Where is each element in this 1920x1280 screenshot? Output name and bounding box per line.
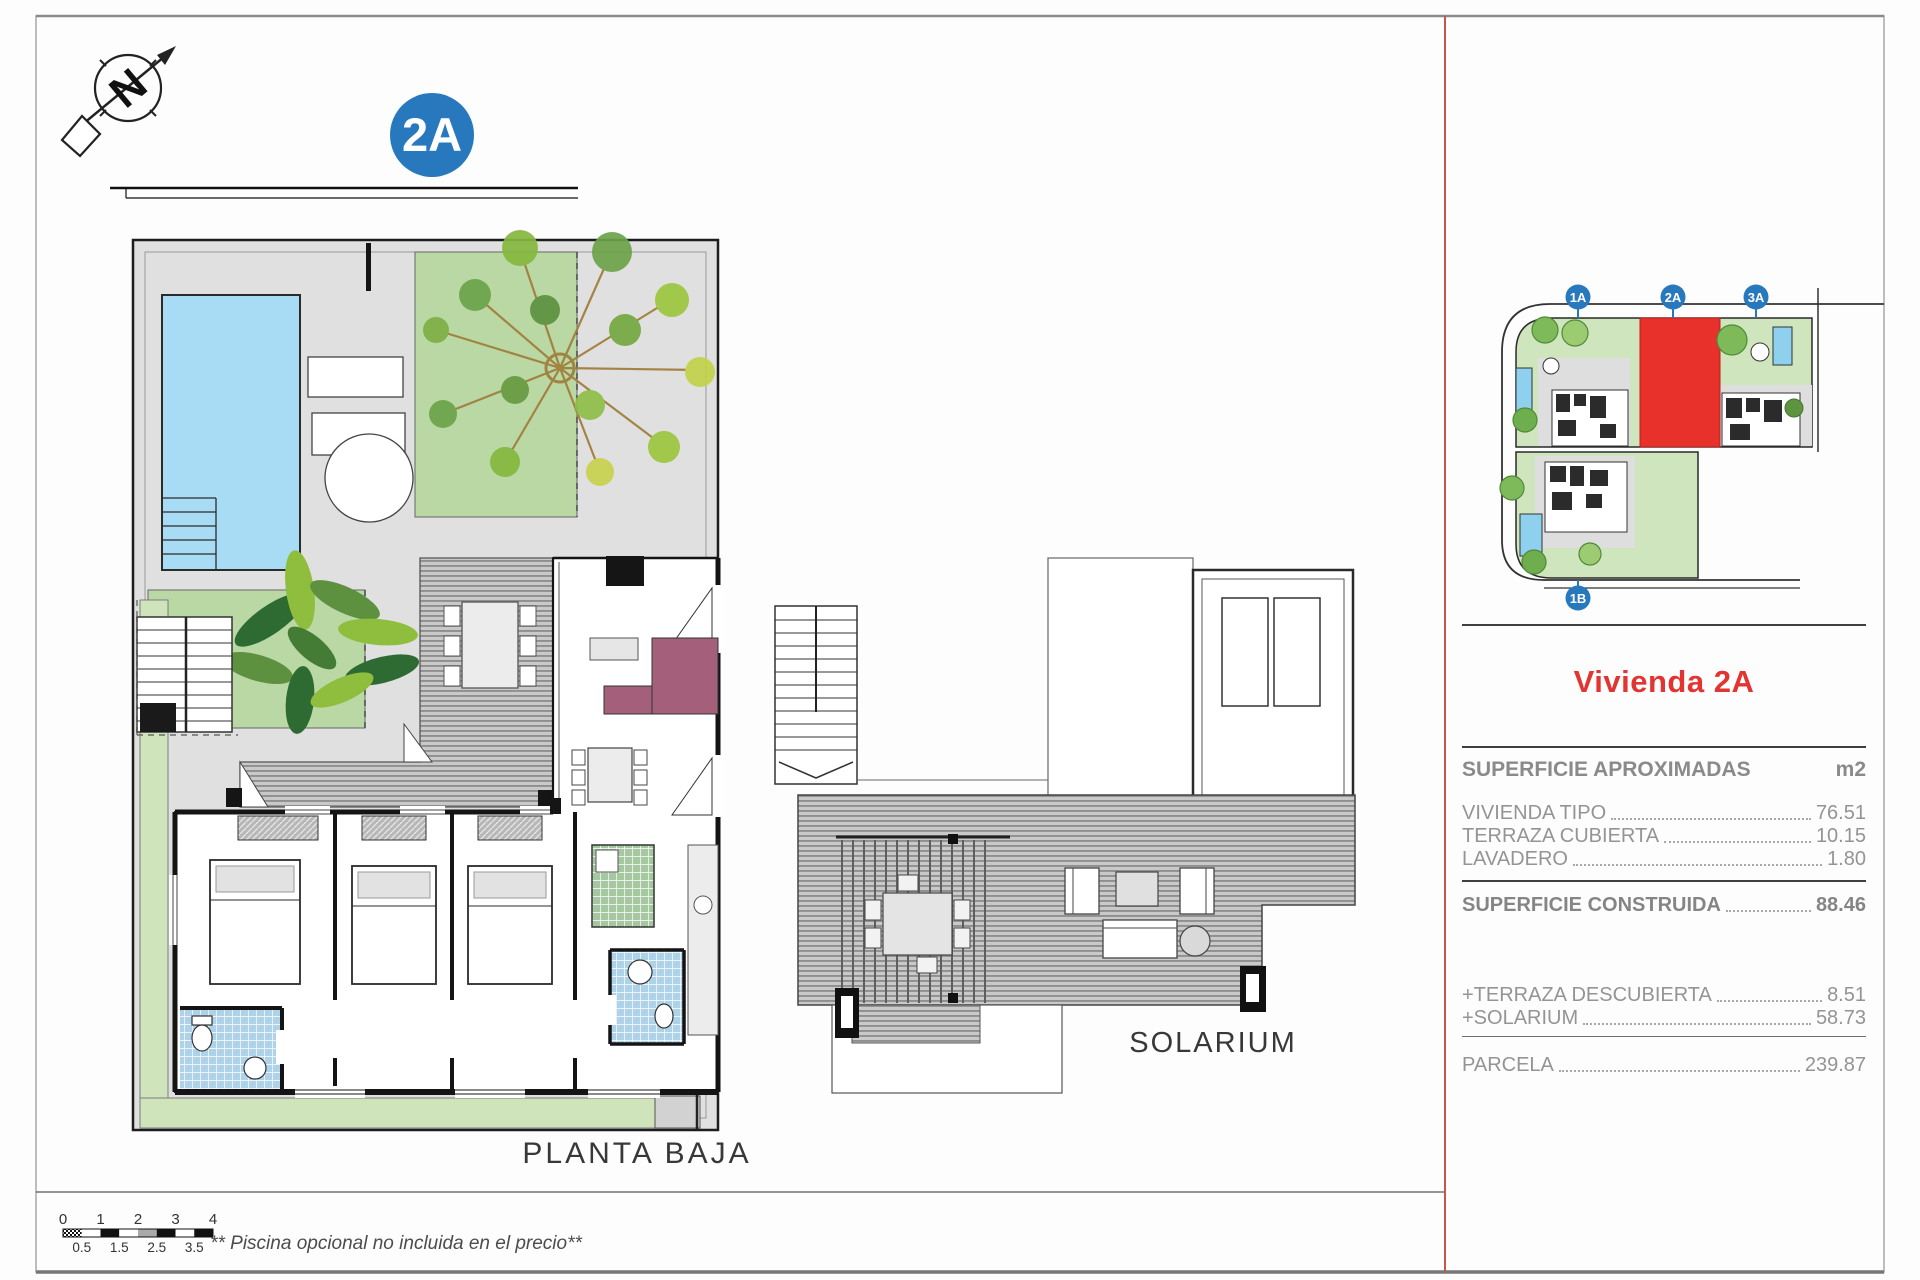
tree-icon — [1513, 408, 1537, 432]
stair-bulkhead — [1193, 570, 1353, 814]
sink — [694, 896, 712, 914]
unit-label: m2 — [1836, 758, 1866, 782]
tree-icon — [1532, 317, 1558, 343]
panel-section-header: SUPERFICIE APROXIMADAS m2 — [1462, 758, 1866, 782]
badge-2a-label: 2A — [1665, 290, 1682, 305]
dot-leader — [1664, 841, 1811, 843]
south-lawn-strip — [140, 1098, 655, 1128]
badge-1a-label: 1A — [1570, 290, 1587, 305]
dining-area — [572, 748, 647, 805]
row-label: VIVIENDA TIPO — [1462, 802, 1606, 824]
surface-row: LAVADERO 1.80 — [1462, 848, 1866, 870]
dot-leader — [1583, 1023, 1811, 1025]
toilet — [192, 1025, 212, 1051]
row-value: 8.51 — [1827, 984, 1866, 1006]
north-arrow-icon: N — [62, 46, 176, 156]
washbasin — [628, 960, 652, 984]
surface-info-panel: Vivienda 2A SUPERFICIE APROXIMADAS m2 VI… — [1462, 612, 1866, 1112]
ground-floor-plan — [133, 230, 724, 1130]
scale-bar: 0 1 2 3 4 0.5 1.5 2.5 3.5 — [59, 1211, 217, 1255]
row-value: 239.87 — [1805, 1054, 1866, 1076]
sunbed — [308, 357, 403, 397]
plan-sheet: N 2A — [0, 0, 1920, 1280]
bed — [210, 860, 300, 984]
section-header-label: SUPERFICIE APROXIMADAS — [1462, 758, 1751, 782]
scale-tick: 3 — [171, 1211, 179, 1228]
toilet — [655, 1004, 673, 1028]
swimming-pool — [162, 295, 300, 570]
row-label: TERRAZA CUBIERTA — [1462, 825, 1659, 847]
tree-icon — [1522, 550, 1546, 574]
coffee-table — [1116, 872, 1158, 906]
row-value: 58.73 — [1816, 1007, 1866, 1029]
washer — [596, 850, 618, 872]
bed — [468, 866, 552, 984]
row-label: LAVADERO — [1462, 848, 1568, 870]
skylight-pane — [1222, 598, 1268, 706]
badge-1b-label: 1B — [1570, 591, 1587, 606]
scale-subtick: 2.5 — [147, 1240, 166, 1255]
scale-subtick: 3.5 — [185, 1240, 204, 1255]
parcel-row: PARCELA 239.87 — [1462, 1054, 1866, 1076]
bed — [352, 866, 436, 984]
deck-dining-table — [462, 602, 518, 688]
tree-icon — [1562, 320, 1588, 346]
dining-table — [588, 748, 632, 802]
svg-text:N: N — [100, 59, 156, 117]
solarium-plan — [775, 558, 1355, 1093]
row-label: +SOLARIUM — [1462, 1007, 1578, 1029]
panel-divider — [1462, 624, 1866, 626]
row-value: 76.51 — [1816, 802, 1866, 824]
dot-leader — [1717, 1000, 1822, 1002]
outdoor-sofa — [1103, 920, 1177, 958]
skylight-pane — [1274, 598, 1320, 706]
site-plan: 1A 2A 3A 1B — [1500, 285, 1884, 611]
scale-tick: 0 — [59, 1211, 67, 1228]
round-table — [325, 434, 413, 522]
washbasin — [244, 1057, 266, 1079]
ground-floor-caption: PLANTA BAJA — [522, 1137, 751, 1170]
scale-tick: 2 — [134, 1211, 142, 1228]
scale-tick: 4 — [209, 1211, 217, 1228]
row-label: SUPERFICIE CONSTRUIDA — [1462, 894, 1721, 916]
side-table — [1180, 926, 1210, 956]
scale-tick: 1 — [96, 1211, 104, 1228]
pergola-table — [883, 893, 952, 955]
surface-row: +SOLARIUM 58.73 — [1462, 1007, 1866, 1029]
badge-3a-label: 3A — [1748, 290, 1765, 305]
row-label: +TERRAZA DESCUBIERTA — [1462, 984, 1712, 1006]
unit-badge: 2A — [110, 93, 578, 198]
entry-stairs — [137, 600, 238, 735]
armchair — [1065, 868, 1099, 914]
solarium-stairs — [775, 606, 857, 784]
row-label: PARCELA — [1462, 1054, 1554, 1076]
panel-title: Vivienda 2A — [1462, 664, 1866, 700]
wardrobe — [362, 816, 426, 840]
site-unit-2a-highlight — [1640, 318, 1720, 447]
sofa-chaise — [604, 686, 652, 714]
tree-icon — [1785, 399, 1803, 417]
unit-badge-label: 2A — [402, 108, 462, 161]
solarium-caption: SOLARIUM — [1129, 1027, 1296, 1059]
wardrobe — [238, 816, 318, 840]
tree-icon — [1579, 543, 1601, 565]
scale-subtick: 0.5 — [72, 1240, 91, 1255]
pool-footnote: ** Piscina opcional no incluida en el pr… — [210, 1233, 582, 1254]
dot-leader — [1611, 818, 1811, 820]
row-value: 88.46 — [1816, 894, 1866, 916]
panel-divider — [1462, 746, 1866, 748]
tree-icon — [1500, 476, 1524, 500]
armchair — [1180, 868, 1214, 914]
dot-leader — [1573, 864, 1822, 866]
wardrobe — [478, 816, 542, 840]
surface-row: +TERRAZA DESCUBIERTA 8.51 — [1462, 984, 1866, 1006]
row-value: 1.80 — [1827, 848, 1866, 870]
sideboard — [590, 638, 638, 660]
tree-icon — [1717, 325, 1747, 355]
kitchen-counter — [688, 845, 718, 1035]
panel-divider — [1462, 880, 1866, 882]
dot-leader — [1726, 910, 1811, 912]
dot-leader — [1559, 1070, 1800, 1072]
sofa — [652, 638, 718, 714]
surface-row: VIVIENDA TIPO 76.51 — [1462, 802, 1866, 824]
tree-garden — [415, 252, 577, 517]
scale-subtick: 1.5 — [110, 1240, 129, 1255]
panel-divider — [1462, 1036, 1866, 1037]
row-value: 10.15 — [1816, 825, 1866, 847]
surface-row: TERRAZA CUBIERTA 10.15 — [1462, 825, 1866, 847]
built-surface-row: SUPERFICIE CONSTRUIDA 88.46 — [1462, 894, 1866, 916]
